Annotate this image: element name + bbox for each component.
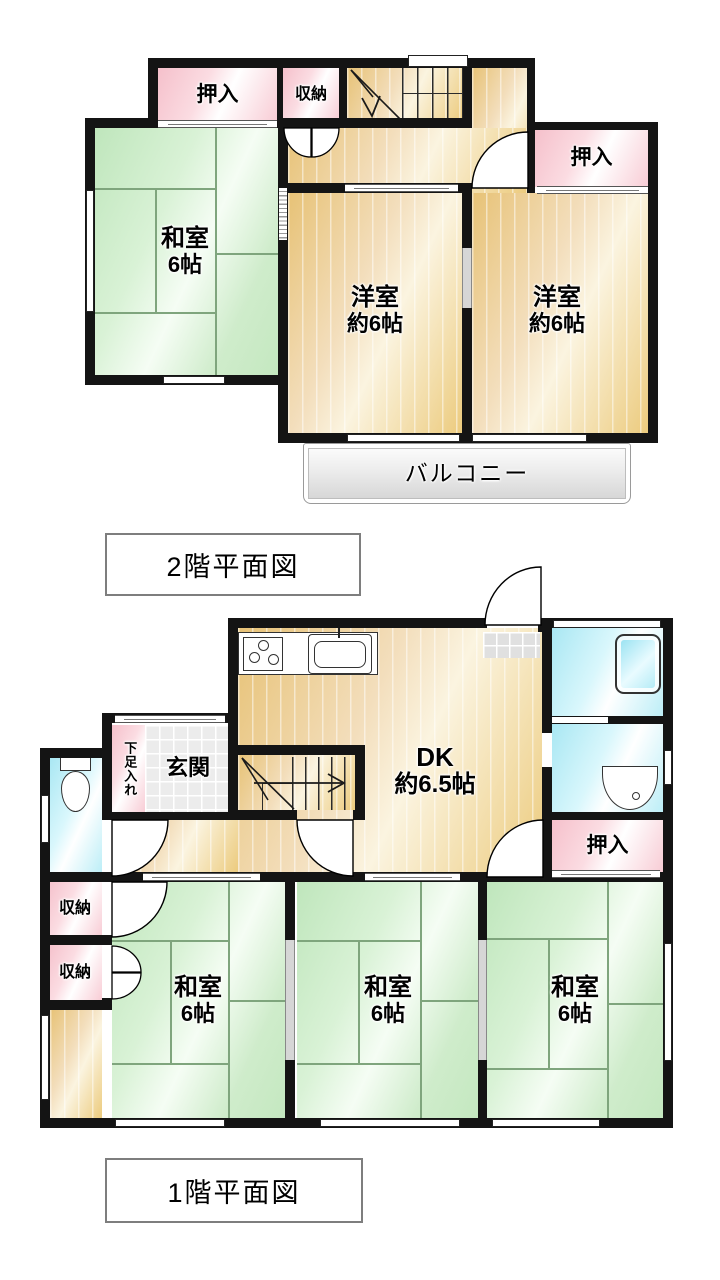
- room-label-oshiire-1f: 押入: [552, 822, 663, 870]
- sliding-partition: [478, 940, 487, 1060]
- sliding-door: [365, 873, 460, 881]
- wall: [102, 935, 112, 945]
- room-label-text: 押入: [197, 83, 239, 107]
- wall: [40, 748, 112, 758]
- window: [115, 1119, 225, 1127]
- tatami-line: [487, 1068, 608, 1070]
- room-label-text: 押入: [571, 146, 613, 170]
- washbasin-drain: [632, 792, 640, 800]
- wall: [278, 118, 288, 443]
- caption-floor1: 1階平面図: [105, 1158, 363, 1223]
- room-1f-veranda: [50, 1010, 102, 1118]
- tatami-line: [297, 1063, 421, 1065]
- toilet-tank-icon: [60, 756, 91, 771]
- wall: [228, 618, 487, 628]
- bathtub-icon: [615, 634, 661, 694]
- room-name: DK: [416, 743, 454, 772]
- wall: [277, 118, 472, 128]
- wall: [353, 810, 365, 820]
- wall: [339, 58, 347, 124]
- room-size: 6帖: [181, 1002, 215, 1027]
- room-label-text: 収納: [295, 86, 327, 104]
- kitchen-sink-basin: [314, 641, 366, 668]
- room-label-shunou: 収納: [283, 72, 339, 118]
- room-name: 和室: [161, 226, 209, 253]
- backdoor-tile-step: [483, 632, 540, 658]
- door-swing-icon: [112, 882, 167, 937]
- wall: [463, 58, 472, 124]
- window: [163, 376, 225, 384]
- room-label-text: 収納: [59, 964, 91, 982]
- room-label-genkan: 玄関: [148, 745, 228, 791]
- window: [664, 943, 672, 1061]
- door-swing-icon: [485, 567, 541, 625]
- wall: [462, 193, 472, 433]
- room-label-shunou-upper: 収納: [48, 886, 102, 932]
- tatami-line: [95, 312, 216, 314]
- stove-burner-icon: [268, 654, 279, 665]
- caption-floor2: 2階平面図: [105, 533, 361, 596]
- sliding-door: [158, 120, 277, 128]
- room-label-washitsu-center: 和室 6帖: [323, 970, 453, 1032]
- wall: [102, 812, 238, 820]
- room-name: 和室: [174, 975, 222, 1002]
- room-label-washitsu-right: 和室 6帖: [510, 970, 640, 1032]
- room-size: 約6帖: [529, 312, 585, 337]
- window: [41, 1015, 49, 1100]
- wall: [102, 998, 112, 1010]
- balcony: バルコニー: [303, 443, 631, 504]
- balcony-label: バルコニー: [405, 461, 530, 487]
- window: [86, 190, 94, 312]
- room-label-shunou-lower: 収納: [48, 950, 102, 996]
- stairs-direction-arrow-icon: [240, 756, 354, 812]
- sliding-partition: [462, 248, 472, 308]
- room-name: 和室: [364, 975, 412, 1002]
- stove-burner-icon: [249, 652, 260, 663]
- room-name: 洋室: [351, 285, 399, 312]
- door-swing-icon: [297, 820, 353, 876]
- wall: [648, 122, 658, 443]
- wall: [278, 433, 658, 443]
- wall: [228, 810, 297, 820]
- window: [408, 55, 468, 67]
- wall: [85, 118, 158, 128]
- window: [347, 434, 460, 442]
- balcony-deck: バルコニー: [308, 448, 626, 499]
- sliding-partition: [285, 940, 295, 1060]
- caption-text: 1階平面図: [167, 1171, 300, 1210]
- shoji-panel: [279, 188, 287, 240]
- door-opening: [552, 717, 608, 723]
- room-name: 和室: [551, 975, 599, 1002]
- room-label-text: 玄関: [166, 756, 210, 781]
- room-size: 約6帖: [347, 312, 403, 337]
- room-label-text: 収納: [59, 900, 91, 918]
- room-label-washitsu-2f: 和室 6帖: [120, 222, 250, 282]
- room-name: 洋室: [533, 285, 581, 312]
- wall: [148, 58, 158, 125]
- tatami-line: [112, 1063, 229, 1065]
- room-label-youshitsu-left: 洋室 約6帖: [305, 280, 445, 342]
- room-size: 6帖: [168, 253, 202, 278]
- wall: [102, 713, 112, 820]
- entrance-sliding-door: [115, 715, 225, 723]
- window: [41, 795, 49, 843]
- room-label-shoe-cabinet: 下足入れ: [114, 728, 144, 810]
- floor-plan-canvas: 押入 収納 和室 6帖 洋室 約6帖 洋室 約6帖 押入 バルコニー 2階平面図: [0, 0, 720, 1280]
- window: [553, 620, 661, 628]
- room-label-oshiire-right: 押入: [535, 132, 648, 184]
- room-size: 約6.5帖: [394, 772, 475, 799]
- double-door-icon: [284, 128, 339, 158]
- room-label-dk: DK 約6.5帖: [360, 738, 510, 804]
- sliding-door: [537, 186, 648, 194]
- room-label-text: 押入: [587, 834, 629, 858]
- wall: [102, 872, 112, 882]
- sliding-door: [552, 870, 660, 878]
- sliding-door: [345, 184, 458, 192]
- wall: [545, 812, 663, 820]
- room-label-oshiire: 押入: [158, 72, 277, 118]
- stove-burner-icon: [258, 640, 269, 651]
- room-label-youshitsu-right: 洋室 約6帖: [487, 280, 627, 342]
- room-size: 6帖: [558, 1002, 592, 1027]
- window: [492, 1119, 600, 1127]
- window: [664, 750, 672, 785]
- window: [320, 1119, 460, 1127]
- door-swing-icon: [487, 820, 543, 877]
- door-swing-icon: [112, 820, 168, 876]
- stairs-direction-arrow-icon: [347, 67, 467, 124]
- caption-text: 2階平面図: [166, 545, 299, 584]
- wall: [228, 745, 365, 755]
- wall: [527, 122, 658, 130]
- room-size: 6帖: [371, 1002, 405, 1027]
- door-swing-icon: [472, 132, 528, 188]
- room-label-washitsu-left: 和室 6帖: [133, 970, 263, 1032]
- window: [472, 434, 587, 442]
- room-label-text: 下足入れ: [122, 741, 137, 797]
